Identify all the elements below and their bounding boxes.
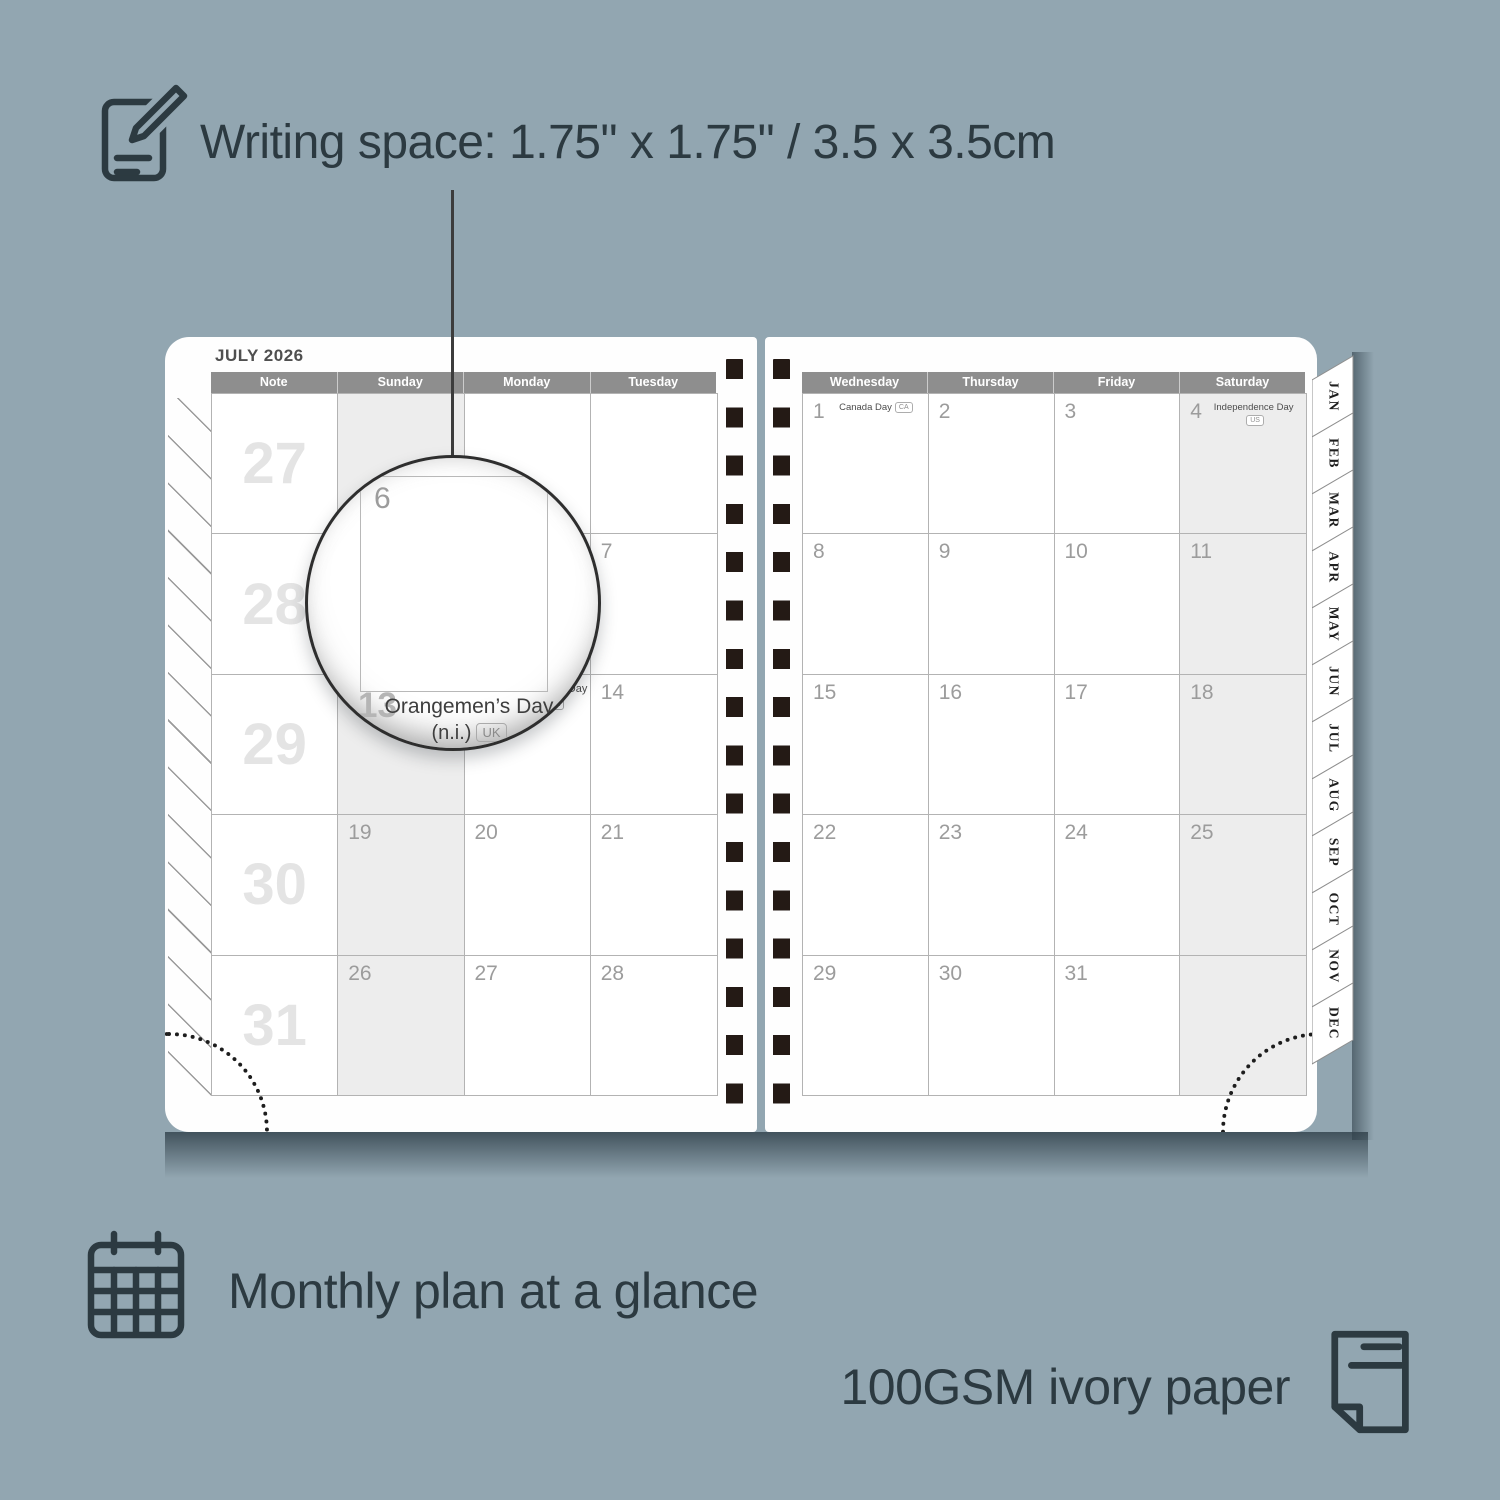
weekday-header-friday: Friday [1054,372,1180,393]
week-number: 30 [212,814,338,954]
paper-icon [1320,1328,1416,1436]
calendar-cell: 24 [1055,814,1181,954]
calendar-cell: 15 [803,674,929,814]
month-tab-label: JAN [1327,381,1342,412]
month-tab-label: FEB [1327,438,1342,469]
week-number: 29 [212,674,338,814]
country-badge: CA [895,402,913,413]
weekday-header-wednesday: Wednesday [802,372,928,393]
calendar-cell: 23 [929,814,1055,954]
date-number: 31 [1065,962,1088,986]
calendar-cell: 16 [929,674,1055,814]
weekday-header-thursday: Thursday [928,372,1054,393]
date-number: 15 [813,681,836,705]
magnified-holiday-line1: Orangemen’s Day [368,695,570,719]
calendar-cell: 1Canada DayCA [803,393,929,533]
uk-badge: UK [476,723,506,742]
date-number: 29 [813,962,836,986]
calendar-cell: 14 [591,674,717,814]
left-weekday-header: NoteSundayMondayTuesday [211,372,716,393]
month-tab-label: MAR [1327,492,1342,529]
month-tab-label: JUN [1327,666,1342,697]
weekday-header-note: Note [211,372,338,393]
date-number: 20 [475,821,498,845]
tear-corner-arc-right [1207,1032,1317,1132]
calendar-cell: 4Independence DayUS [1180,393,1306,533]
right-calendar-grid: 1Canada DayCA234Independence DayUS891011… [802,393,1307,1096]
calendar-cell: 29 [803,955,929,1095]
magnified-holiday-line2: (n.i.)UK [368,722,570,745]
spiral-binding-right-column [773,359,790,1104]
date-number: 10 [1065,540,1088,564]
planner-bottom-shadow [165,1132,1368,1178]
date-number: 16 [939,681,962,705]
tear-corner-arc-left [165,1032,275,1132]
calendar-cell: 3 [1055,393,1181,533]
date-number: 9 [939,540,951,564]
month-tab-label: SEP [1327,838,1342,867]
calendar-cell: 2 [929,393,1055,533]
date-number: 2 [939,400,951,424]
month-tab-label: OCT [1327,893,1342,927]
right-weekday-header: WednesdayThursdayFridaySaturday [802,372,1305,393]
calendar-cell: 26 [338,955,464,1095]
date-number: 4 [1190,400,1202,424]
date-number: 27 [475,962,498,986]
weekday-header-monday: Monday [464,372,591,393]
holiday-label: Canada DayCA [827,402,925,415]
weekday-header-saturday: Saturday [1180,372,1305,393]
date-number: 25 [1190,821,1213,845]
date-number: 26 [348,962,371,986]
calendar-cell: 7 [591,533,717,673]
paper-annotation: 100GSM ivory paper [840,1358,1290,1416]
calendar-cell: 18 [1180,674,1306,814]
calendar-cell [591,393,717,533]
weekday-header-sunday: Sunday [338,372,465,393]
calendar-cell: 31 [1055,955,1181,1095]
calendar-cell: 22 [803,814,929,954]
month-tab-label: DEC [1327,1007,1342,1040]
date-number: 30 [939,962,962,986]
month-tab-label: MAY [1327,607,1342,643]
month-tabs: JANFEBMARAPRMAYJUNJULAUGSEPOCTNOVDEC [1312,350,1354,1074]
date-number: 3 [1065,400,1077,424]
page-edge-hatch [168,398,211,1098]
date-number: 24 [1065,821,1088,845]
month-title: JULY 2026 [215,346,304,366]
calendar-cell: 30 [929,955,1055,1095]
calendar-cell: 10 [1055,533,1181,673]
country-badge: US [1246,415,1264,426]
notepad-pencil-icon [92,80,192,190]
magnifier-circle: 6 13 Orangemen’s Day (n.i.)UK [305,455,601,751]
calendar-icon [84,1230,188,1342]
date-number: 14 [601,681,624,705]
date-number: 8 [813,540,825,564]
date-number: 18 [1190,681,1213,705]
calendar-cell: 8 [803,533,929,673]
monthly-plan-annotation: Monthly plan at a glance [228,1262,758,1320]
date-number: 11 [1190,540,1212,564]
calendar-cell: 11 [1180,533,1306,673]
date-number: 22 [813,821,836,845]
week-number: 27 [212,393,338,533]
calendar-cell: 20 [465,814,591,954]
magnified-day-number: 6 [374,482,391,516]
date-number: 21 [601,821,624,845]
calendar-cell: 19 [338,814,464,954]
product-image-canvas: Writing space: 1.75" x 1.75" / 3.5 x 3.5… [0,0,1500,1500]
calendar-cell: 17 [1055,674,1181,814]
date-number: 23 [939,821,962,845]
planner-right-page: WednesdayThursdayFridaySaturday 1Canada … [765,337,1317,1132]
spiral-binding-left-column [726,359,743,1104]
planner-right-shadow [1352,352,1374,1140]
date-number: 7 [601,540,613,564]
holiday-label: Independence DayUS [1204,402,1303,428]
callout-line [451,190,454,460]
month-tab-label: JUL [1327,723,1342,753]
month-tab-label: AUG [1327,778,1342,813]
month-tab-label: NOV [1327,949,1342,984]
date-number: 17 [1065,681,1088,705]
date-number: 19 [348,821,371,845]
date-number: 1 [813,400,825,424]
weekday-header-tuesday: Tuesday [591,372,717,393]
calendar-cell: 27 [465,955,591,1095]
month-tab-label: APR [1327,551,1342,583]
calendar-cell: 28 [591,955,717,1095]
calendar-cell: 25 [1180,814,1306,954]
date-number: 28 [601,962,624,986]
calendar-cell: 9 [929,533,1055,673]
calendar-cell: 21 [591,814,717,954]
writing-space-annotation: Writing space: 1.75" x 1.75" / 3.5 x 3.5… [200,115,1055,170]
